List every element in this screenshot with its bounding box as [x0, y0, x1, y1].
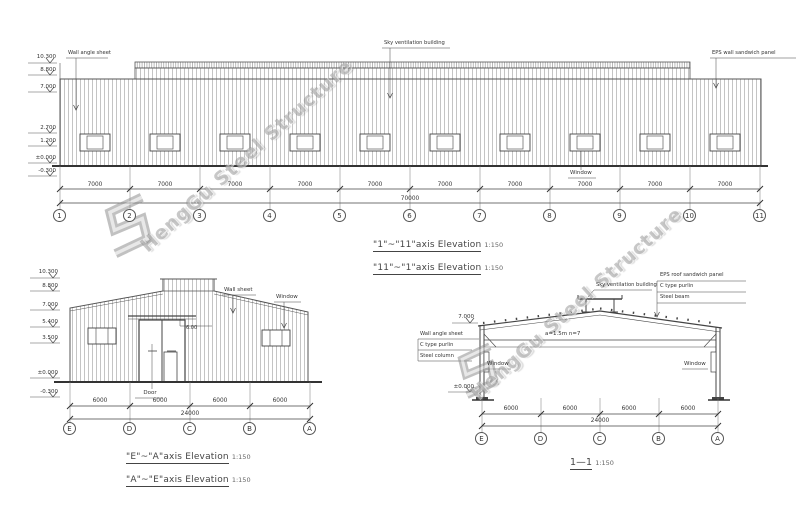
axis-bubble: 8	[543, 209, 556, 222]
column-stack-label: C type purlin	[420, 342, 453, 349]
window-label: Window	[570, 170, 592, 177]
axis-bubble: 1	[53, 209, 66, 222]
level-label: ±0.000	[22, 155, 56, 162]
cad-sheet: HengGu Steel Structure HengGu Steel Stru…	[0, 0, 800, 509]
axis-bubble: 4	[263, 209, 276, 222]
bay-dim: 7000	[640, 182, 670, 189]
door-label: Door	[136, 390, 164, 397]
title-scale: 1:150	[232, 476, 251, 484]
title-name: "E"~"A"axis Elevation	[126, 452, 229, 464]
bay-dim: 7000	[430, 182, 460, 189]
title-scale: 1:150	[232, 453, 251, 461]
level-label: 2.700	[22, 125, 56, 132]
window-label: Window	[684, 361, 706, 368]
axis-bubble: 7	[473, 209, 486, 222]
axis-bubble: 10	[683, 209, 696, 222]
canopy-dim-label: 6.00	[186, 325, 197, 332]
level-label: 10.300	[26, 269, 58, 276]
axis-bubble: B	[243, 422, 256, 435]
window-label: Window	[276, 294, 298, 301]
axis-bubble: E	[475, 432, 488, 445]
level-label: ±0.000	[26, 370, 58, 377]
drawing-title: "11"~"1"axis Elevation1:150	[373, 255, 503, 274]
bay-dim: 7000	[80, 182, 110, 189]
window-label: Window	[487, 361, 509, 368]
drawing-title: "A"~"E"axis Elevation1:150	[126, 467, 251, 486]
axis-bubble: D	[123, 422, 136, 435]
ridge-vent-label: Sky ventilation building	[596, 282, 657, 289]
axis-bubble: C	[593, 432, 606, 445]
wall-sheet-label: Wall sheet	[224, 287, 253, 294]
bay-dim: 7000	[500, 182, 530, 189]
total-dim: 70000	[385, 196, 435, 203]
level-label: 5.400	[26, 319, 58, 326]
axis-bubble: A	[303, 422, 316, 435]
axis-bubble: 6	[403, 209, 416, 222]
roof-stack-label: EPS roof sandwich panel	[660, 272, 724, 279]
level-label: 7.000	[26, 302, 58, 309]
roof-stack-label: Steel beam	[660, 294, 690, 301]
axis-bubble: 2	[123, 209, 136, 222]
title-name: "A"~"E"axis Elevation	[126, 475, 229, 487]
axis-bubble: A	[711, 432, 724, 445]
purlin-note-label: a=1.5m n=7	[545, 331, 580, 338]
bay-dim: 6000	[145, 398, 175, 405]
axis-bubble: E	[63, 422, 76, 435]
bay-dim: 6000	[205, 398, 235, 405]
level-label: ±0.000	[436, 384, 474, 391]
ridge-vent-label: Sky ventilation building	[384, 40, 445, 47]
bay-dim: 7000	[710, 182, 740, 189]
title-scale: 1:150	[484, 241, 503, 249]
column-stack-label: Wall angle sheet	[420, 331, 463, 338]
drawing-title: 1—11:150	[570, 450, 614, 469]
roof-stack-label: C type purlin	[660, 283, 693, 290]
axis-bubble: 9	[613, 209, 626, 222]
level-label: 1.200	[22, 138, 56, 145]
bay-dim: 6000	[614, 406, 644, 413]
total-dim: 24000	[575, 418, 625, 425]
bay-dim: 6000	[496, 406, 526, 413]
level-label: 3.500	[26, 335, 58, 342]
axis-bubble: B	[652, 432, 665, 445]
level-label: 8.800	[26, 283, 58, 290]
total-dim: 24000	[165, 411, 215, 418]
level-label: -0.300	[26, 389, 58, 396]
axis-bubble: C	[183, 422, 196, 435]
level-label: 10.300	[22, 54, 56, 61]
bay-dim: 6000	[673, 406, 703, 413]
bay-dim: 6000	[555, 406, 585, 413]
bay-dim: 7000	[290, 182, 320, 189]
level-label: 7.000	[22, 84, 56, 91]
bay-dim: 6000	[85, 398, 115, 405]
title-name: "11"~"1"axis Elevation	[373, 263, 481, 275]
bay-dim: 6000	[265, 398, 295, 405]
drawing-title: "1"~"11"axis Elevation1:150	[373, 232, 503, 251]
wall-angle-sheet-label: Wall angle sheet	[68, 50, 111, 57]
title-scale: 1:150	[595, 459, 614, 467]
axis-bubble: D	[534, 432, 547, 445]
level-label: 8.800	[22, 67, 56, 74]
title-name: "1"~"11"axis Elevation	[373, 240, 481, 252]
axis-bubble: 11	[753, 209, 766, 222]
top-elevation-drawing	[28, 48, 796, 210]
bay-dim: 7000	[150, 182, 180, 189]
axis-bubble: 3	[193, 209, 206, 222]
axis-bubble: 5	[333, 209, 346, 222]
eps-panel-label: EPS wall sandwich panel	[712, 50, 776, 57]
bay-dim: 7000	[570, 182, 600, 189]
level-label: 7.000	[440, 314, 474, 321]
bay-dim: 7000	[360, 182, 390, 189]
title-name: 1—1	[570, 457, 592, 470]
level-label: -0.300	[22, 168, 56, 175]
drawing-title: "E"~"A"axis Elevation1:150	[126, 444, 251, 463]
column-stack-label: Steel column	[420, 353, 454, 360]
bay-dim: 7000	[220, 182, 250, 189]
title-scale: 1:150	[484, 264, 503, 272]
